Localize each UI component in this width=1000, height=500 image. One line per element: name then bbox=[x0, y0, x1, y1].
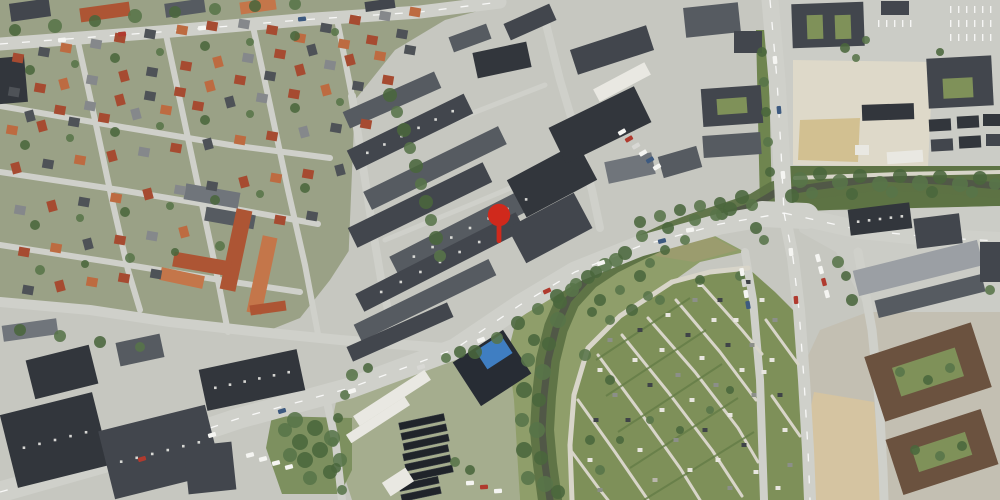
tree bbox=[893, 169, 907, 183]
tree bbox=[89, 15, 101, 27]
garden-shed bbox=[648, 383, 653, 387]
tree bbox=[872, 176, 888, 192]
tree bbox=[532, 393, 546, 407]
parking-stripe bbox=[886, 20, 887, 27]
pin-head[interactable] bbox=[488, 204, 510, 226]
tree bbox=[328, 437, 338, 447]
roof-skylight bbox=[434, 118, 437, 121]
tree bbox=[605, 315, 615, 325]
garden-shed bbox=[770, 358, 775, 362]
house bbox=[68, 117, 80, 128]
tree bbox=[853, 169, 867, 183]
tree bbox=[125, 253, 135, 263]
tree bbox=[425, 214, 437, 226]
parking-stripe bbox=[990, 20, 991, 27]
tree bbox=[605, 375, 615, 385]
roof-skylight bbox=[413, 255, 416, 258]
house bbox=[60, 43, 72, 54]
tree bbox=[674, 204, 686, 216]
tree bbox=[550, 312, 566, 328]
house bbox=[34, 83, 46, 94]
tree bbox=[846, 294, 858, 306]
tree bbox=[307, 420, 323, 436]
parking-stripe bbox=[974, 34, 975, 41]
garden-shed bbox=[660, 408, 665, 412]
tree bbox=[409, 159, 423, 173]
building bbox=[929, 118, 952, 131]
tree bbox=[303, 471, 317, 485]
roof-skylight bbox=[879, 218, 882, 221]
parking-stripe bbox=[982, 6, 983, 13]
tree bbox=[331, 463, 341, 473]
garden-shed bbox=[598, 488, 603, 492]
house bbox=[242, 53, 254, 64]
tree bbox=[535, 364, 551, 380]
car bbox=[118, 31, 126, 36]
house bbox=[396, 29, 408, 40]
tree bbox=[528, 334, 540, 346]
roof-skylight bbox=[857, 220, 860, 223]
tree bbox=[654, 210, 666, 222]
tree bbox=[551, 485, 565, 499]
car bbox=[780, 171, 785, 179]
house bbox=[234, 75, 246, 86]
parking-stripe bbox=[902, 20, 903, 27]
roof-skylight bbox=[23, 446, 26, 449]
car bbox=[466, 481, 474, 486]
tree bbox=[813, 167, 827, 181]
garden-shed bbox=[754, 470, 759, 474]
tree bbox=[895, 367, 905, 377]
house bbox=[86, 75, 98, 86]
garden-shed bbox=[676, 373, 681, 377]
tree bbox=[952, 176, 968, 192]
tree bbox=[676, 426, 684, 434]
tree bbox=[840, 43, 850, 53]
tree bbox=[256, 190, 264, 198]
house bbox=[42, 159, 54, 170]
tree bbox=[841, 271, 851, 281]
tree bbox=[643, 291, 653, 301]
tree bbox=[491, 332, 503, 344]
house bbox=[8, 87, 20, 98]
tree bbox=[76, 214, 84, 222]
garden-shed bbox=[750, 343, 755, 347]
tree bbox=[48, 19, 62, 33]
tree bbox=[246, 38, 254, 46]
parking-stripe bbox=[894, 20, 895, 27]
tree bbox=[25, 65, 35, 75]
house bbox=[264, 71, 276, 82]
tree bbox=[120, 207, 130, 217]
house bbox=[6, 125, 18, 136]
house bbox=[38, 47, 50, 58]
tree bbox=[985, 285, 995, 295]
building bbox=[702, 132, 761, 158]
car bbox=[772, 56, 777, 64]
courtyard bbox=[716, 97, 747, 115]
roof-skylight bbox=[417, 127, 420, 130]
building bbox=[931, 138, 954, 151]
courtyard bbox=[942, 77, 973, 99]
house bbox=[270, 173, 282, 184]
tree bbox=[886, 186, 898, 198]
roof-skylight bbox=[120, 460, 123, 463]
car bbox=[494, 489, 502, 494]
tree bbox=[35, 265, 45, 275]
roof-skylight bbox=[399, 281, 402, 284]
house bbox=[84, 101, 96, 112]
building bbox=[983, 114, 1000, 126]
parking-stripe bbox=[950, 6, 951, 13]
garden-shed bbox=[740, 368, 745, 372]
house bbox=[78, 197, 90, 208]
tree bbox=[66, 134, 74, 142]
house bbox=[114, 235, 126, 246]
tree bbox=[926, 186, 938, 198]
tree bbox=[945, 363, 955, 373]
house bbox=[256, 93, 268, 104]
house bbox=[160, 105, 172, 116]
house bbox=[302, 169, 314, 180]
tree bbox=[434, 250, 446, 262]
tree bbox=[957, 441, 967, 451]
tree bbox=[71, 60, 79, 68]
tree bbox=[336, 98, 344, 106]
garden-shed bbox=[613, 393, 618, 397]
tree bbox=[936, 48, 944, 56]
tree bbox=[515, 413, 529, 427]
house bbox=[12, 53, 24, 64]
house bbox=[144, 91, 156, 102]
roof-skylight bbox=[229, 383, 232, 386]
car bbox=[788, 248, 793, 256]
parking-stripe bbox=[878, 20, 879, 27]
roof-skylight bbox=[198, 441, 201, 444]
tree bbox=[292, 434, 308, 450]
house bbox=[206, 181, 218, 192]
garden-shed bbox=[728, 486, 733, 490]
building bbox=[184, 442, 237, 495]
tree bbox=[465, 465, 475, 475]
tree bbox=[759, 77, 769, 87]
map-viewport[interactable] bbox=[0, 0, 1000, 500]
tree bbox=[935, 451, 945, 461]
garden-shed bbox=[788, 463, 793, 467]
garden-shed bbox=[778, 393, 783, 397]
house bbox=[374, 51, 386, 62]
garden-shed bbox=[712, 318, 717, 322]
tree bbox=[283, 448, 297, 462]
tree bbox=[634, 216, 646, 228]
garden-shed bbox=[700, 356, 705, 360]
tree bbox=[171, 248, 179, 256]
tree bbox=[660, 245, 670, 255]
roof-skylight bbox=[469, 227, 472, 230]
tree bbox=[135, 342, 145, 352]
house bbox=[404, 45, 416, 56]
tree bbox=[534, 451, 548, 465]
tree bbox=[278, 423, 292, 437]
roof-skylight bbox=[182, 445, 185, 448]
car bbox=[198, 25, 206, 30]
tree bbox=[200, 41, 210, 51]
garden-shed bbox=[693, 298, 698, 302]
tree bbox=[973, 171, 987, 185]
tree bbox=[542, 337, 556, 351]
tree bbox=[645, 258, 655, 268]
roof-skylight bbox=[38, 443, 41, 446]
roof-skylight bbox=[69, 435, 72, 438]
parking-stripe bbox=[958, 34, 959, 41]
garden-shed bbox=[686, 333, 691, 337]
house bbox=[50, 243, 62, 254]
courtyard bbox=[835, 15, 852, 40]
tree bbox=[210, 195, 220, 205]
roof-skylight bbox=[273, 374, 276, 377]
garden-shed bbox=[716, 458, 721, 462]
parking-stripe bbox=[966, 34, 967, 41]
car bbox=[776, 106, 781, 114]
tree bbox=[300, 183, 310, 193]
house bbox=[266, 131, 278, 142]
parking-stripe bbox=[950, 34, 951, 41]
building bbox=[986, 134, 1000, 146]
house bbox=[110, 193, 122, 204]
garden-shed bbox=[714, 383, 719, 387]
tree bbox=[806, 187, 818, 199]
house bbox=[146, 231, 158, 242]
building bbox=[980, 242, 1000, 282]
tree bbox=[757, 47, 767, 57]
tree bbox=[429, 231, 443, 245]
tree bbox=[694, 200, 706, 212]
tree bbox=[923, 375, 933, 385]
roof-skylight bbox=[258, 377, 261, 380]
garden-shed bbox=[734, 318, 739, 322]
house bbox=[274, 49, 286, 60]
building bbox=[683, 2, 741, 38]
house bbox=[90, 39, 102, 50]
garden-shed bbox=[638, 448, 643, 452]
house bbox=[379, 11, 391, 22]
tree bbox=[655, 295, 665, 305]
tree bbox=[156, 48, 164, 56]
tree bbox=[615, 285, 625, 295]
courtyard bbox=[807, 15, 824, 40]
tree bbox=[680, 235, 690, 245]
house bbox=[146, 67, 158, 78]
roof-skylight bbox=[287, 371, 290, 374]
tree bbox=[110, 127, 120, 137]
house bbox=[409, 7, 421, 18]
house bbox=[324, 60, 336, 71]
parking-stripe bbox=[990, 34, 991, 41]
tree bbox=[862, 36, 870, 44]
tree bbox=[346, 369, 358, 381]
parking-stripe bbox=[966, 20, 967, 27]
house bbox=[306, 211, 318, 222]
car bbox=[480, 485, 488, 490]
tree bbox=[290, 31, 300, 41]
garden-shed bbox=[633, 358, 638, 362]
car bbox=[58, 37, 66, 42]
tree bbox=[595, 465, 605, 475]
building bbox=[791, 2, 864, 48]
parking-stripe bbox=[982, 34, 983, 41]
tree bbox=[391, 106, 403, 118]
house bbox=[330, 123, 342, 134]
house bbox=[86, 277, 98, 288]
region bbox=[806, 392, 886, 500]
building bbox=[957, 115, 980, 128]
tree bbox=[587, 307, 597, 317]
tree bbox=[765, 167, 775, 177]
parking-stripe bbox=[974, 20, 975, 27]
tree bbox=[695, 275, 705, 285]
roof-skylight bbox=[166, 449, 169, 452]
tree bbox=[759, 235, 769, 245]
tree bbox=[832, 174, 848, 190]
tree bbox=[166, 202, 174, 210]
tree bbox=[792, 172, 808, 188]
garden-shed bbox=[626, 418, 631, 422]
house bbox=[144, 29, 156, 40]
tree bbox=[521, 353, 535, 367]
tree bbox=[706, 406, 714, 414]
tree bbox=[450, 457, 460, 467]
tree bbox=[215, 241, 225, 251]
roof-skylight bbox=[419, 271, 422, 274]
house bbox=[320, 23, 332, 34]
house bbox=[366, 35, 378, 46]
tree bbox=[331, 28, 339, 36]
tree bbox=[14, 324, 26, 336]
building bbox=[913, 213, 962, 248]
region bbox=[798, 118, 860, 162]
garden-shed bbox=[776, 486, 781, 490]
tree bbox=[616, 436, 624, 444]
house bbox=[174, 87, 186, 98]
house bbox=[174, 185, 186, 196]
tree bbox=[94, 336, 106, 348]
house bbox=[118, 273, 130, 284]
parking-stripe bbox=[958, 6, 959, 13]
house bbox=[238, 19, 250, 30]
garden-shed bbox=[762, 370, 767, 374]
tree bbox=[521, 471, 535, 485]
house bbox=[180, 61, 192, 72]
satellite-map[interactable] bbox=[0, 0, 1000, 500]
parking-stripe bbox=[974, 6, 975, 13]
house bbox=[54, 105, 66, 116]
tree bbox=[636, 230, 648, 242]
tree bbox=[912, 175, 928, 191]
house bbox=[22, 285, 34, 296]
tree bbox=[404, 142, 416, 154]
tree bbox=[511, 316, 525, 330]
tree bbox=[910, 445, 920, 455]
garden-shed bbox=[690, 398, 695, 402]
garden-shed bbox=[588, 458, 593, 462]
roof-skylight bbox=[901, 215, 904, 218]
tree bbox=[419, 195, 433, 209]
house bbox=[176, 25, 188, 36]
house bbox=[234, 135, 246, 146]
tree bbox=[20, 140, 30, 150]
tree bbox=[689, 214, 701, 226]
tree bbox=[579, 349, 591, 361]
garden-shed bbox=[598, 368, 603, 372]
house bbox=[274, 215, 286, 226]
roof-skylight bbox=[135, 457, 138, 460]
garden-shed bbox=[752, 393, 757, 397]
tree bbox=[249, 0, 261, 12]
tree bbox=[565, 283, 579, 297]
garden-shed bbox=[608, 338, 613, 342]
tree bbox=[156, 122, 164, 130]
tree bbox=[110, 53, 120, 63]
garden-shed bbox=[703, 428, 708, 432]
house bbox=[150, 269, 162, 280]
car bbox=[793, 296, 798, 304]
tree bbox=[746, 199, 758, 211]
roof-skylight bbox=[366, 152, 369, 155]
garden-shed bbox=[638, 328, 643, 332]
tree bbox=[750, 222, 762, 234]
tree bbox=[169, 6, 181, 18]
house bbox=[192, 101, 204, 112]
tree bbox=[761, 107, 771, 117]
building bbox=[0, 56, 28, 104]
parking-stripe bbox=[990, 6, 991, 13]
tree bbox=[297, 452, 313, 468]
tree bbox=[516, 382, 532, 398]
roof-skylight bbox=[451, 110, 454, 113]
house bbox=[170, 143, 182, 154]
region bbox=[848, 0, 1000, 44]
tree bbox=[710, 209, 722, 221]
roof-skylight bbox=[868, 219, 871, 222]
garden-shed bbox=[718, 298, 723, 302]
building bbox=[887, 150, 924, 164]
roof-skylight bbox=[85, 431, 88, 434]
tree bbox=[723, 202, 737, 216]
tree bbox=[468, 345, 482, 359]
tree bbox=[618, 246, 632, 260]
tree bbox=[585, 435, 595, 445]
building bbox=[862, 103, 915, 121]
tree bbox=[581, 270, 595, 284]
tree bbox=[441, 353, 451, 363]
parking-stripe bbox=[958, 20, 959, 27]
tree bbox=[852, 54, 860, 62]
car bbox=[298, 16, 306, 21]
tree bbox=[333, 413, 343, 423]
tree bbox=[128, 9, 142, 23]
house bbox=[138, 147, 150, 158]
tree bbox=[81, 260, 89, 268]
parking-stripe bbox=[950, 20, 951, 27]
tree bbox=[290, 103, 300, 113]
roof-skylight bbox=[890, 216, 893, 219]
tree bbox=[337, 485, 347, 495]
garden-shed bbox=[674, 438, 679, 442]
tree bbox=[529, 422, 545, 438]
house bbox=[360, 119, 372, 130]
tree bbox=[209, 3, 221, 15]
tree bbox=[9, 24, 21, 36]
